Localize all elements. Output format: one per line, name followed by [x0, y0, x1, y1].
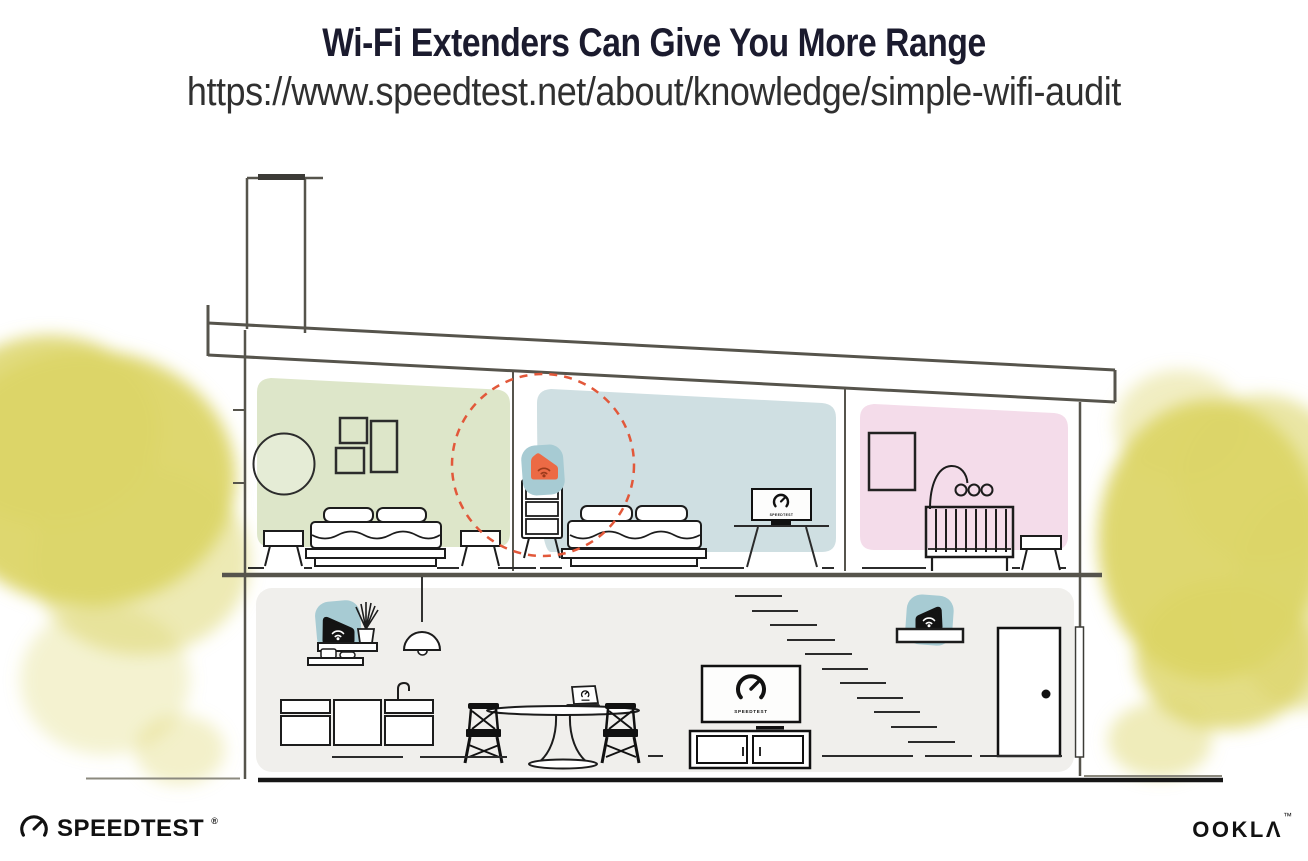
- nightstand-right: [461, 531, 500, 566]
- speedtest-gauge-icon: [18, 813, 50, 845]
- ookla-wordmark: OOKLΛ: [1192, 817, 1283, 842]
- tv-screen-label: SPEEDTEST: [770, 513, 794, 517]
- foliage-right-tree: [1098, 370, 1308, 778]
- speedtest-logo: SPEEDTEST®: [18, 813, 218, 845]
- trademark-mark: ™: [1283, 811, 1292, 821]
- round-mirror: [254, 434, 315, 495]
- pink-nursery-wall: [860, 404, 1068, 550]
- chimney: [247, 174, 323, 333]
- wifi-extender-upstairs: [520, 444, 565, 497]
- ookla-logo: OOKLΛ™: [1192, 817, 1292, 843]
- wall-shelf: [897, 629, 963, 642]
- tv-screen-label: SPEEDTEST: [734, 709, 768, 714]
- foliage-left-tree: [0, 335, 250, 785]
- nightstand-left: [264, 531, 303, 566]
- tv-and-console: SPEEDTEST: [690, 666, 810, 768]
- door-knob: [1042, 690, 1051, 699]
- registered-mark: ®: [211, 816, 218, 826]
- wall-panel-right: [1076, 627, 1084, 757]
- floor-line-lower: [332, 756, 972, 757]
- stool: [1021, 536, 1061, 570]
- speedtest-wordmark: SPEEDTEST: [57, 815, 204, 843]
- house-illustration: SPEEDTEST: [0, 0, 1308, 861]
- ground-line: [86, 776, 1223, 780]
